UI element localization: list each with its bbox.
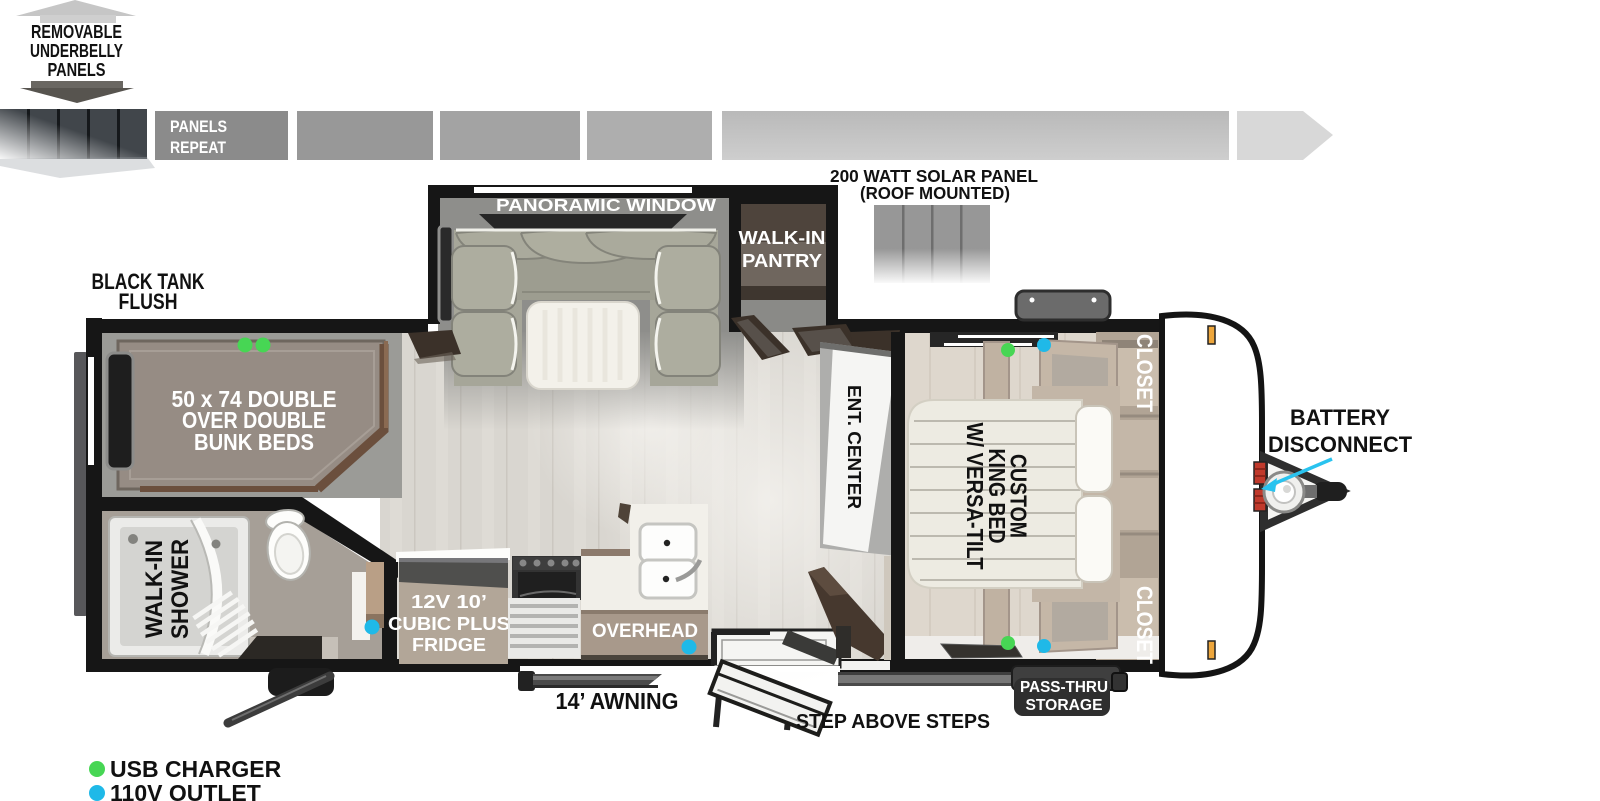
- svg-text:FLUSH: FLUSH: [119, 289, 178, 314]
- svg-text:WALK-IN: WALK-IN: [739, 228, 826, 248]
- svg-text:WALK-INSHOWER: WALK-INSHOWER: [141, 539, 194, 639]
- svg-text:CLOSET: CLOSET: [1132, 334, 1157, 412]
- svg-text:12V 10’: 12V 10’: [411, 591, 487, 612]
- svg-text:110V OUTLET: 110V OUTLET: [110, 780, 261, 801]
- svg-text:STEP ABOVE STEPS: STEP ABOVE STEPS: [796, 710, 990, 733]
- svg-text:FRIDGE: FRIDGE: [412, 634, 486, 655]
- svg-text:ENT. CENTER: ENT. CENTER: [844, 385, 864, 509]
- svg-text:USB CHARGER: USB CHARGER: [110, 756, 282, 782]
- svg-text:REPEAT: REPEAT: [170, 138, 227, 157]
- svg-text:OVERHEAD: OVERHEAD: [592, 621, 698, 642]
- svg-text:REMOVABLE: REMOVABLE: [31, 22, 122, 42]
- svg-text:DISCONNECT: DISCONNECT: [1268, 432, 1413, 457]
- svg-text:CUBIC PLUS: CUBIC PLUS: [388, 613, 510, 634]
- svg-text:PANELS: PANELS: [48, 60, 106, 80]
- svg-text:UNDERBELLY: UNDERBELLY: [30, 41, 123, 61]
- svg-text:PASS-THRU: PASS-THRU: [1020, 679, 1108, 696]
- svg-text:PANORAMIC WINDOW: PANORAMIC WINDOW: [496, 195, 717, 215]
- svg-text:STORAGE: STORAGE: [1026, 697, 1103, 714]
- svg-text:14’ AWNING: 14’ AWNING: [556, 688, 679, 714]
- svg-text:PANTRY: PANTRY: [742, 251, 822, 271]
- svg-text:BUNK BEDS: BUNK BEDS: [194, 429, 314, 455]
- svg-text:PANELS: PANELS: [170, 117, 227, 136]
- svg-text:BATTERY: BATTERY: [1290, 405, 1390, 430]
- svg-text:CLOSET: CLOSET: [1132, 586, 1157, 664]
- svg-text:(ROOF MOUNTED): (ROOF MOUNTED): [860, 183, 1010, 203]
